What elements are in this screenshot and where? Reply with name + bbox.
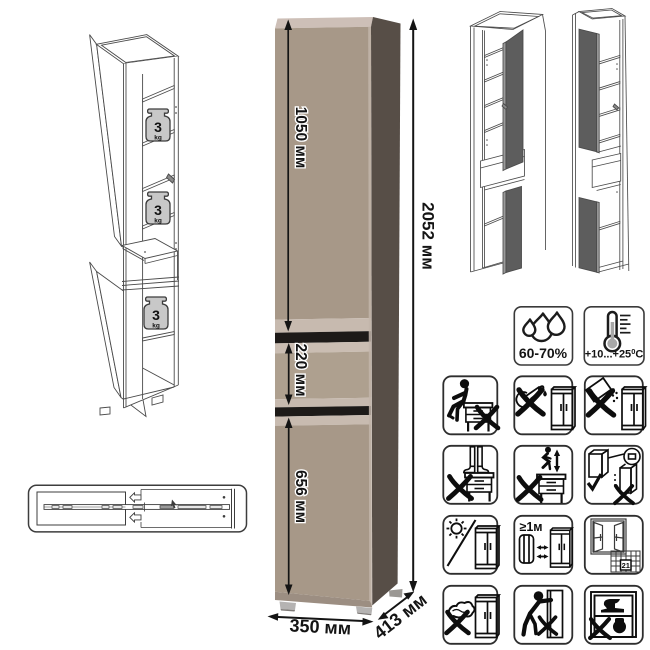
svg-text:kg: kg [154, 135, 162, 142]
svg-text:60-70%: 60-70% [519, 345, 568, 361]
svg-text:656 мм: 656 мм [292, 470, 309, 523]
svg-text:220 мм: 220 мм [292, 343, 309, 396]
svg-text:3: 3 [152, 307, 160, 323]
svg-text:3: 3 [154, 119, 162, 135]
svg-text:+10...+250C: +10...+250C [585, 347, 644, 361]
svg-text:350 мм: 350 мм [289, 615, 352, 638]
svg-text:3: 3 [154, 202, 162, 218]
svg-text:2052 мм: 2052 мм [419, 202, 438, 270]
svg-text:21: 21 [622, 561, 630, 570]
svg-text:≥1м: ≥1м [520, 520, 543, 534]
svg-text:1050 мм: 1050 мм [292, 107, 309, 169]
svg-text:kg: kg [154, 218, 162, 225]
svg-text:kg: kg [152, 323, 160, 330]
